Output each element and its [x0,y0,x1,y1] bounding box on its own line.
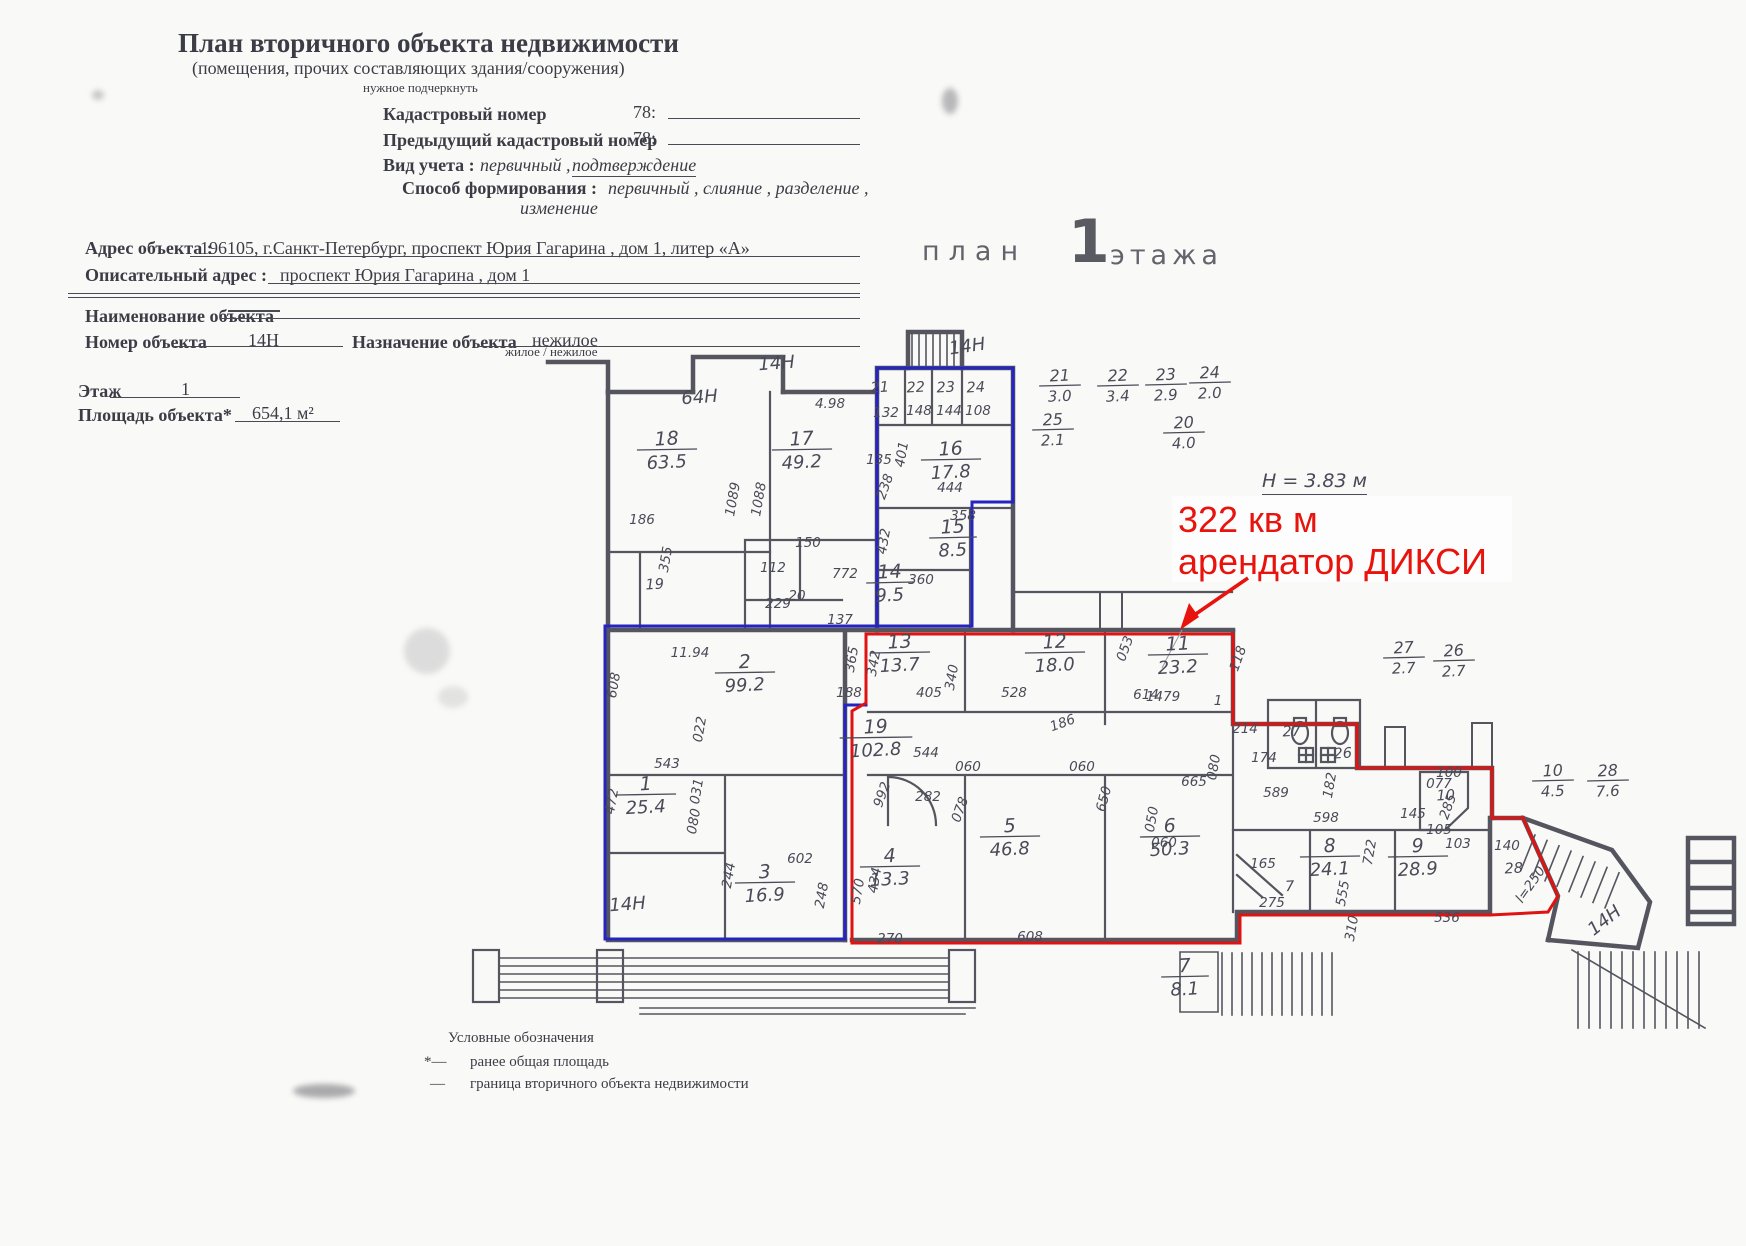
room-label-12-bar [1025,652,1085,653]
room-label-11-number: 11 [1165,632,1190,655]
small-room-number: 28 [1504,861,1523,878]
dimension-label: 543 [654,756,680,772]
dimension-label: 145 [1400,806,1426,822]
dimension-label: 472 [602,787,622,815]
dimension-label: 650 [1093,784,1115,813]
dimension-label: 275 [1259,895,1285,911]
scan-smudge [438,686,468,708]
dimension-label: 608 [604,671,624,699]
room-label-11-bar [1148,654,1208,655]
room-label-1-area: 25.4 [625,796,666,819]
room-label-1-number: 1 [639,773,652,796]
room-label-18-number: 18 [654,427,679,450]
room-fraction-10-area: 4.5 [1540,782,1565,801]
room-label-18-area: 63.5 [646,451,687,474]
plan-labels: 1863.51749.21617.8158.5149.5299.21313.71… [602,334,1629,1001]
dimension-label: 140 [1494,838,1520,854]
room-label-12-area: 18.0 [1034,654,1075,677]
room-label-8-number: 8 [1323,835,1336,858]
room-label-19-area: 102.8 [849,739,902,763]
room-label-7-number: 7 [1178,955,1191,978]
room-fraction-27-number: 27 [1393,637,1415,657]
dimension-label: 1089 [722,481,744,518]
dimension-label: 022 [690,715,710,743]
dimension-label: 078 [948,795,972,825]
dimension-label: 186 [629,512,655,528]
dimension-label: 340 [942,663,962,691]
room-label-14-number: 14 [877,560,902,583]
room-label-5-number: 5 [1003,815,1016,838]
dimension-label: 108 [965,403,991,419]
scan-smudge [942,88,958,114]
dimension-label: 112 [760,560,786,576]
dimension-label: 555 [1333,879,1353,907]
room-fraction-20-bar [1163,432,1205,433]
room-label-6-number: 6 [1163,815,1176,838]
room-label-11-area: 23.2 [1157,656,1198,679]
room-fraction-21-number: 21 [1049,365,1070,385]
dimension-label: 4.98 [815,396,845,412]
unit-label: 14Н [758,352,796,376]
unit-label: 14Н [948,334,987,360]
room-fraction-23-area: 2.9 [1153,386,1178,405]
room-label-16-bar [921,459,981,460]
dimension-label: 358 [950,508,976,524]
dimension-label: 614 [1133,687,1159,703]
dimension-label: 772 [832,566,858,582]
room-fraction-10-bar [1532,780,1574,781]
room-fraction-28-bar [1587,780,1629,781]
small-room-number: 21 [870,380,889,397]
dimension-label: 244 [719,861,739,889]
room-fraction-28-area: 7.6 [1595,782,1620,801]
small-room-number: 19 [645,577,664,594]
room-fraction-23-number: 23 [1155,364,1176,384]
dimension-label: 080 [684,807,704,835]
stair-tread [1545,846,1559,881]
room-label-14-area: 9.5 [875,584,905,606]
dimension-label: 186 [1048,711,1078,735]
room-label-3-number: 3 [758,861,771,884]
room-fraction-27-area: 2.7 [1391,659,1416,678]
dimension-label: 135 [866,452,892,468]
scan-smudge [293,1084,355,1098]
room-label-17-area: 49.2 [781,451,822,474]
dimension-label: 432 [874,527,894,555]
dimension-label: 528 [1001,685,1027,701]
room-label-14-bar [866,582,914,583]
room-fraction-22-number: 22 [1107,365,1128,385]
dimension-label: 310 [1342,914,1362,942]
dimension-label: 722 [1360,838,1380,866]
dimension-label: 444 [937,480,963,496]
dimension-label: 060 [955,759,981,775]
dimension-label: 20 [788,588,805,604]
dimension-label: 031 [687,777,707,805]
dimension-label: 148 [906,403,932,419]
room-fraction-25-number: 25 [1042,409,1063,429]
small-room-number: 7 [1285,879,1296,896]
dimension-label: 282 [915,789,941,805]
room-label-9-bar [1388,856,1448,857]
room-fraction-23-bar [1145,384,1187,385]
dimension-label: 602 [787,851,813,867]
small-room-number: 23 [936,380,955,397]
room-label-18-bar [637,449,697,450]
room-fraction-26-bar [1433,660,1475,661]
stair-tread [1593,867,1607,902]
room-label-17-bar [772,449,832,450]
small-room-number: 24 [966,380,985,397]
small-room-number: 10 [1436,788,1455,805]
room-label-16-number: 16 [938,437,963,460]
dimension-label: 1088 [748,481,770,518]
dimension-label: 229 [765,596,791,612]
stair-tread [1569,857,1583,892]
room-fraction-20-number: 20 [1173,412,1194,432]
room-label-2-number: 2 [738,651,751,674]
room-fraction-21-area: 3.0 [1047,387,1072,406]
dimension-label: 060 [1151,835,1177,851]
room-label-7-bar [1161,976,1209,977]
room-fraction-24-bar [1189,382,1231,383]
room-fraction-25-area: 2.1 [1040,431,1065,450]
room-label-3-area: 16.9 [744,884,785,907]
unit-label: 64Н [681,386,719,410]
room-fraction-10-number: 10 [1542,760,1563,780]
dimension-label: 182 [1320,771,1340,799]
scan-smudge [92,90,104,100]
dimension-label: 665 [1181,774,1207,790]
room-fraction-28-number: 28 [1597,760,1618,780]
stair-tread [1557,851,1571,886]
dimension-label: 060 [1069,759,1095,775]
dimension-label: 365 [842,645,862,673]
dimension-label: 188 [836,685,862,701]
room-label-19-number: 19 [863,715,888,738]
room-label-13-number: 13 [887,630,912,653]
scanned-floor-plan-document: План вторичного объекта недвижимости (по… [0,0,1746,1246]
dimension-label: 103 [1445,836,1471,852]
dimension-label: 1 [1214,693,1223,709]
small-room-number: 22 [906,380,925,397]
dimension-label: 165 [1250,856,1276,872]
room-fraction-24-number: 24 [1199,362,1220,382]
legend-item-boundary: граница вторичного объекта недвижимости [470,1076,749,1093]
dimension-label: 401 [892,440,912,468]
legend-item-prev-area: ранее общая площадь [470,1054,609,1071]
legend-marker-2: — [430,1076,445,1093]
dimension-label: 608 [1017,929,1043,945]
dimension-label: 174 [1251,750,1277,766]
dimension-label: 050 [1142,805,1162,833]
room-label-1-bar [616,794,676,795]
room-fraction-27-bar [1383,657,1425,658]
dimension-label: 360 [908,572,934,588]
scan-smudge [404,628,450,674]
room-label-9-area: 28.9 [1397,858,1438,881]
room-label-13-area: 13.7 [879,654,921,677]
stair-tread [1581,862,1595,897]
room-label-7-area: 8.1 [1170,978,1200,1000]
dimension-label: 11.94 [671,645,710,661]
dimension-label: 053 [1113,634,1137,664]
room-fraction-22-bar [1097,385,1139,386]
room-fraction-24-area: 2.0 [1197,384,1222,403]
dimension-label: 137 [827,612,853,628]
room-label-9-number: 9 [1411,835,1424,858]
room-label-12-number: 12 [1042,630,1067,653]
room-label-5-area: 46.8 [989,838,1030,861]
room-label-4-number: 4 [883,845,896,868]
dimension-label: 080 [1204,753,1224,781]
dimension-label: 150 [795,535,821,551]
room-label-15-area: 8.5 [938,539,968,561]
dimension-label: 992 [870,780,894,810]
room-label-2-bar [715,672,775,673]
room-fraction-20-area: 4.0 [1171,434,1196,453]
dimension-label: 355 [656,545,676,573]
room-label-5-bar [980,836,1040,837]
room-label-8-area: 24.1 [1309,858,1350,881]
room-fraction-22-area: 3.4 [1105,387,1130,406]
unit-label: 14Н [1584,901,1626,940]
room-label-17-number: 17 [789,427,814,450]
dimension-label: 405 [916,685,942,701]
room-label-3-bar [735,882,795,883]
dimension-label: 118 [1226,644,1250,674]
room-fraction-21-bar [1039,385,1081,386]
floor-plan-drawing: 1863.51749.21617.8158.5149.5299.21313.71… [0,0,1746,1246]
dimension-label: 144 [936,403,962,419]
dimension-label: 598 [1313,810,1339,826]
dimension-label: 270 [877,931,903,947]
legend-title: Условные обозначения [448,1030,594,1047]
small-room-number: 27 [1282,723,1302,740]
room-fraction-25-bar [1032,429,1074,430]
dimension-label: 214 [1232,721,1258,737]
small-room-number: 26 [1333,746,1352,763]
dimension-label: 544 [913,745,939,761]
dimension-label: 248 [812,881,832,909]
dimension-label: 132 [873,405,899,421]
room-fraction-26-number: 26 [1443,640,1464,660]
room-label-2-area: 99.2 [724,674,765,697]
room-fraction-26-area: 2.7 [1441,662,1466,681]
legend-marker-1: *— [424,1054,447,1071]
dimension-label: 589 [1263,785,1289,801]
dimension-label: 536 [1434,910,1460,926]
unit-label: 14Н [609,893,647,917]
